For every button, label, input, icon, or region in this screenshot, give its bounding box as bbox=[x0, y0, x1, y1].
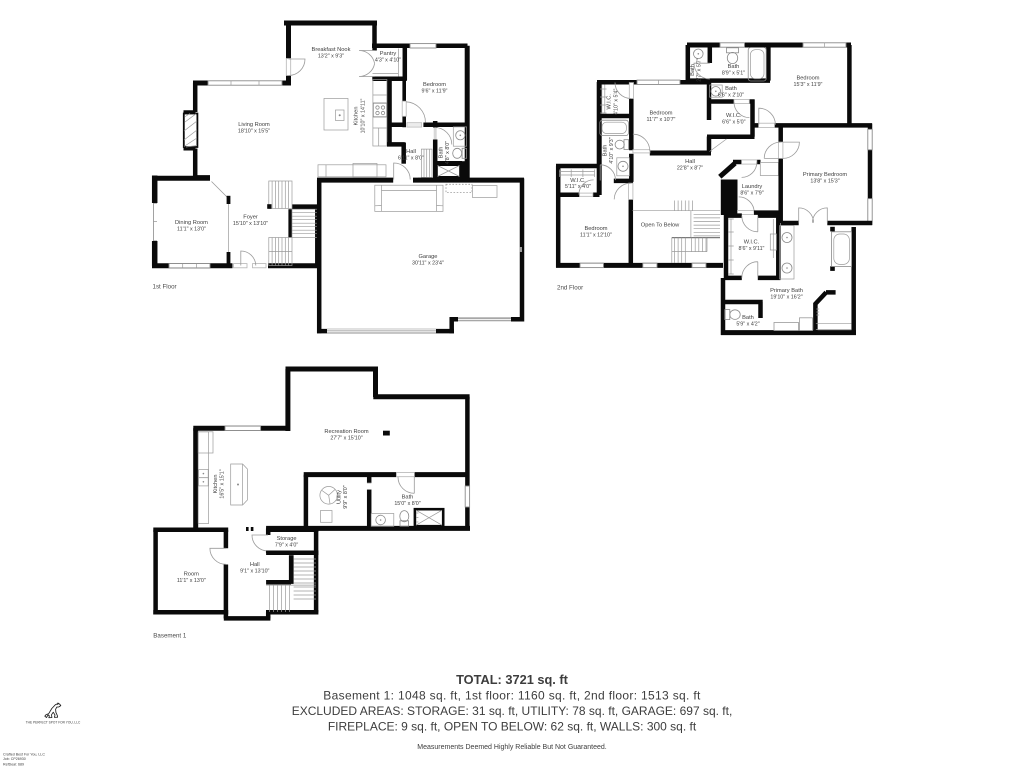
svg-text:2nd Floor: 2nd Floor bbox=[557, 285, 583, 292]
svg-text:Basement 1: 1048 sq. ft, 1st f: Basement 1: 1048 sq. ft, 1st floor: 1160… bbox=[323, 689, 701, 703]
svg-text:W.I.C.: W.I.C. bbox=[744, 240, 760, 246]
svg-text:Bath: Bath bbox=[728, 64, 740, 70]
svg-text:Primary Bedroom: Primary Bedroom bbox=[803, 172, 848, 178]
svg-text:19'10" x 16'2": 19'10" x 16'2" bbox=[770, 294, 802, 300]
svg-text:Bedroom: Bedroom bbox=[584, 226, 607, 232]
svg-text:27'7" x 15'10": 27'7" x 15'10" bbox=[330, 435, 362, 441]
svg-text:5'11" x 4'0": 5'11" x 4'0" bbox=[565, 184, 591, 190]
svg-text:9'9" x 8'0": 9'9" x 8'0" bbox=[343, 485, 349, 508]
svg-text:11'1" x 13'0": 11'1" x 13'0" bbox=[177, 226, 206, 232]
svg-text:W.I.C.: W.I.C. bbox=[726, 113, 742, 119]
svg-text:4'8" x 8'0": 4'8" x 8'0" bbox=[445, 141, 451, 164]
svg-text:6'6" x 2'10": 6'6" x 2'10" bbox=[718, 92, 744, 98]
svg-text:Bedroom: Bedroom bbox=[423, 82, 446, 88]
svg-text:Utility: Utility bbox=[337, 490, 343, 504]
svg-text:Room: Room bbox=[184, 572, 199, 578]
svg-text:7'9" x 4'0": 7'9" x 4'0" bbox=[275, 542, 298, 548]
svg-text:5'9" x 4'2": 5'9" x 4'2" bbox=[736, 321, 759, 327]
svg-text:6'11" x 8'0": 6'11" x 8'0" bbox=[398, 155, 424, 161]
svg-text:8'6" x 7'9": 8'6" x 7'9" bbox=[740, 190, 763, 196]
svg-text:Measurements Deemed Highly Rel: Measurements Deemed Highly Reliable But … bbox=[417, 744, 607, 751]
svg-text:Breakfast Nook: Breakfast Nook bbox=[312, 47, 351, 53]
svg-text:TOTAL: 3721 sq. ft: TOTAL: 3721 sq. ft bbox=[456, 672, 569, 687]
svg-text:Open To Below: Open To Below bbox=[641, 223, 680, 229]
svg-text:8'9" x 5'1": 8'9" x 5'1" bbox=[722, 70, 745, 76]
svg-text:18'10" x 15'5": 18'10" x 15'5" bbox=[238, 128, 270, 134]
svg-text:EXCLUDED AREAS: STORAGE: 31 sq: EXCLUDED AREAS: STORAGE: 31 sq. ft, UTIL… bbox=[292, 704, 733, 718]
svg-text:13'8" x 15'3": 13'8" x 15'3" bbox=[810, 178, 839, 184]
svg-text:10'10" x 14'11": 10'10" x 14'11" bbox=[361, 98, 367, 133]
svg-text:11'1" x 12'10": 11'1" x 12'10" bbox=[580, 232, 612, 238]
svg-text:9'6" x 11'9": 9'6" x 11'9" bbox=[422, 88, 448, 94]
svg-text:Basement 1: Basement 1 bbox=[153, 633, 187, 640]
svg-text:Hall: Hall bbox=[685, 159, 695, 165]
svg-text:RefDeal: 689: RefDeal: 689 bbox=[3, 763, 24, 767]
svg-text:Pantry: Pantry bbox=[380, 51, 397, 57]
svg-text:THE PERFECT SPOT FOR YOU, LLC: THE PERFECT SPOT FOR YOU, LLC bbox=[26, 721, 81, 725]
svg-text:Primary Bath: Primary Bath bbox=[770, 288, 803, 294]
svg-text:15'3" x 11'9": 15'3" x 11'9" bbox=[794, 82, 823, 88]
svg-text:4'10" x 5'4": 4'10" x 5'4" bbox=[613, 89, 619, 115]
svg-text:Bath: Bath bbox=[439, 147, 445, 159]
svg-text:Bedroom: Bedroom bbox=[649, 111, 672, 117]
svg-text:11'7" x 10'7": 11'7" x 10'7" bbox=[647, 117, 676, 123]
svg-text:6'6" x 5'0": 6'6" x 5'0" bbox=[722, 119, 745, 125]
svg-text:Foyer: Foyer bbox=[243, 215, 258, 221]
svg-text:30'11" x 23'4": 30'11" x 23'4" bbox=[412, 260, 444, 266]
svg-text:Recreation Room: Recreation Room bbox=[324, 429, 369, 435]
svg-text:Crafted Best For You, LLC: Crafted Best For You, LLC bbox=[3, 753, 45, 757]
svg-text:Bath: Bath bbox=[402, 495, 414, 501]
svg-text:FIREPLACE: 9 sq. ft, OPEN TO B: FIREPLACE: 9 sq. ft, OPEN TO BELOW: 62 s… bbox=[328, 720, 697, 734]
svg-text:Bath: Bath bbox=[603, 145, 609, 157]
svg-text:W.I.C.: W.I.C. bbox=[607, 94, 613, 110]
svg-text:15'10" x 13'10": 15'10" x 13'10" bbox=[233, 221, 268, 227]
svg-text:15'0" x 8'0": 15'0" x 8'0" bbox=[394, 501, 420, 507]
svg-text:11'1" x 13'0": 11'1" x 13'0" bbox=[177, 578, 206, 584]
svg-text:4'3" x 4'10": 4'3" x 4'10" bbox=[375, 57, 401, 63]
svg-text:Dining Room: Dining Room bbox=[175, 220, 208, 226]
svg-text:Bath: Bath bbox=[690, 64, 696, 76]
svg-text:Laundry: Laundry bbox=[742, 184, 763, 190]
svg-text:22'8" x 8'7": 22'8" x 8'7" bbox=[677, 165, 703, 171]
svg-text:8'6" x 9'11": 8'6" x 9'11" bbox=[739, 246, 765, 252]
svg-text:13'2" x 9'3": 13'2" x 9'3" bbox=[318, 53, 344, 59]
svg-text:Storage: Storage bbox=[277, 536, 297, 542]
svg-text:Bath: Bath bbox=[742, 315, 754, 321]
svg-text:Bedroom: Bedroom bbox=[796, 76, 819, 82]
svg-text:4'10" x 9'3": 4'10" x 9'3" bbox=[609, 137, 615, 163]
svg-text:Job: CP26930: Job: CP26930 bbox=[3, 757, 26, 761]
svg-text:Kitchen: Kitchen bbox=[354, 107, 360, 126]
svg-text:Living Room: Living Room bbox=[238, 122, 270, 128]
svg-text:2'7" x 5'7": 2'7" x 5'7" bbox=[697, 58, 703, 81]
svg-text:16'5" x 15'1": 16'5" x 15'1" bbox=[220, 469, 226, 498]
svg-text:Bath: Bath bbox=[725, 86, 737, 92]
svg-text:Garage: Garage bbox=[419, 254, 438, 260]
svg-text:9'1" x 13'10": 9'1" x 13'10" bbox=[240, 568, 269, 574]
svg-text:Hall: Hall bbox=[250, 562, 260, 568]
svg-text:Hall: Hall bbox=[406, 149, 416, 155]
svg-text:1st Floor: 1st Floor bbox=[153, 284, 177, 291]
svg-text:Kitchen: Kitchen bbox=[213, 475, 219, 494]
